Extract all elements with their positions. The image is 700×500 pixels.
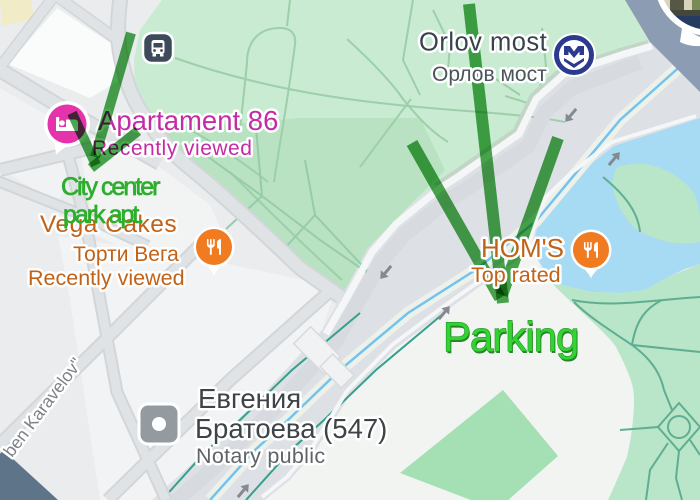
svg-text:HOM'S: HOM'S xyxy=(481,233,564,263)
svg-text:park apt.: park apt. xyxy=(63,201,142,229)
svg-text:Parking: Parking xyxy=(443,313,578,360)
svg-text:Орлов мост: Орлов мост xyxy=(432,63,547,86)
svg-text:Top rated: Top rated xyxy=(471,263,561,287)
svg-text:City center: City center xyxy=(61,173,160,201)
svg-text:Orlov most: Orlov most xyxy=(419,29,547,57)
